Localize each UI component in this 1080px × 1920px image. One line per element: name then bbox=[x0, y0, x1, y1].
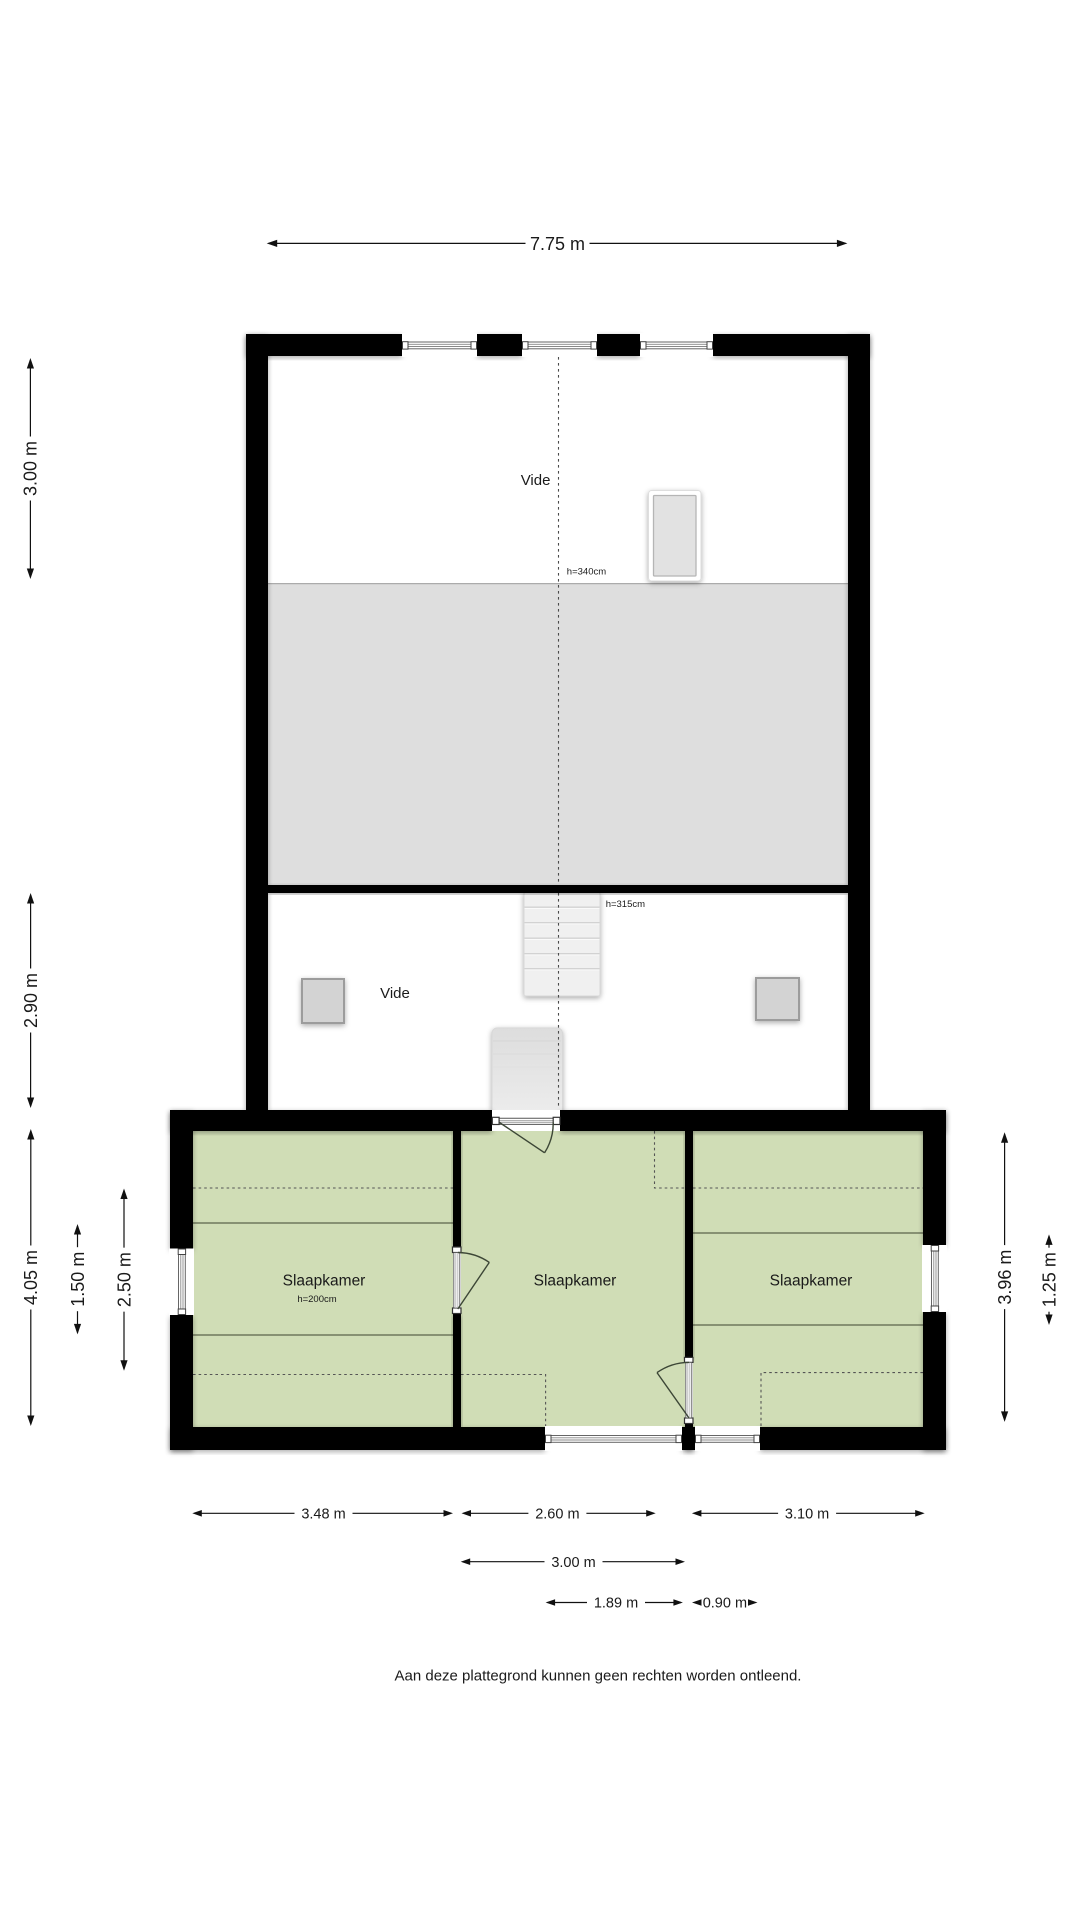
svg-text:Slaapkamer: Slaapkamer bbox=[534, 1273, 617, 1290]
svg-text:2.50 m: 2.50 m bbox=[114, 1252, 134, 1307]
svg-text:Slaapkamer: Slaapkamer bbox=[770, 1273, 853, 1290]
svg-text:Vide: Vide bbox=[380, 985, 410, 1002]
svg-text:3.00 m: 3.00 m bbox=[551, 1555, 595, 1571]
svg-text:4.05 m: 4.05 m bbox=[21, 1250, 41, 1305]
svg-text:Vide: Vide bbox=[521, 472, 551, 489]
svg-text:Slaapkamer: Slaapkamer bbox=[283, 1273, 366, 1290]
svg-text:7.75 m: 7.75 m bbox=[530, 234, 585, 254]
svg-text:1.50 m: 1.50 m bbox=[68, 1252, 88, 1307]
svg-text:1.89 m: 1.89 m bbox=[594, 1596, 638, 1612]
svg-text:h=315cm: h=315cm bbox=[606, 899, 645, 910]
svg-text:1.25 m: 1.25 m bbox=[1039, 1252, 1059, 1307]
svg-text:3.96 m: 3.96 m bbox=[995, 1250, 1015, 1305]
svg-text:2.90 m: 2.90 m bbox=[21, 973, 41, 1028]
svg-text:3.48 m: 3.48 m bbox=[301, 1507, 345, 1523]
svg-text:3.00 m: 3.00 m bbox=[21, 441, 41, 496]
svg-text:3.10 m: 3.10 m bbox=[785, 1507, 829, 1523]
svg-text:0.90 m: 0.90 m bbox=[703, 1596, 747, 1612]
svg-text:h=200cm: h=200cm bbox=[297, 1294, 336, 1305]
svg-text:2.60 m: 2.60 m bbox=[535, 1507, 579, 1523]
svg-text:h=340cm: h=340cm bbox=[567, 567, 606, 578]
svg-text:Aan deze plattegrond kunnen ge: Aan deze plattegrond kunnen geen rechten… bbox=[395, 1668, 802, 1685]
